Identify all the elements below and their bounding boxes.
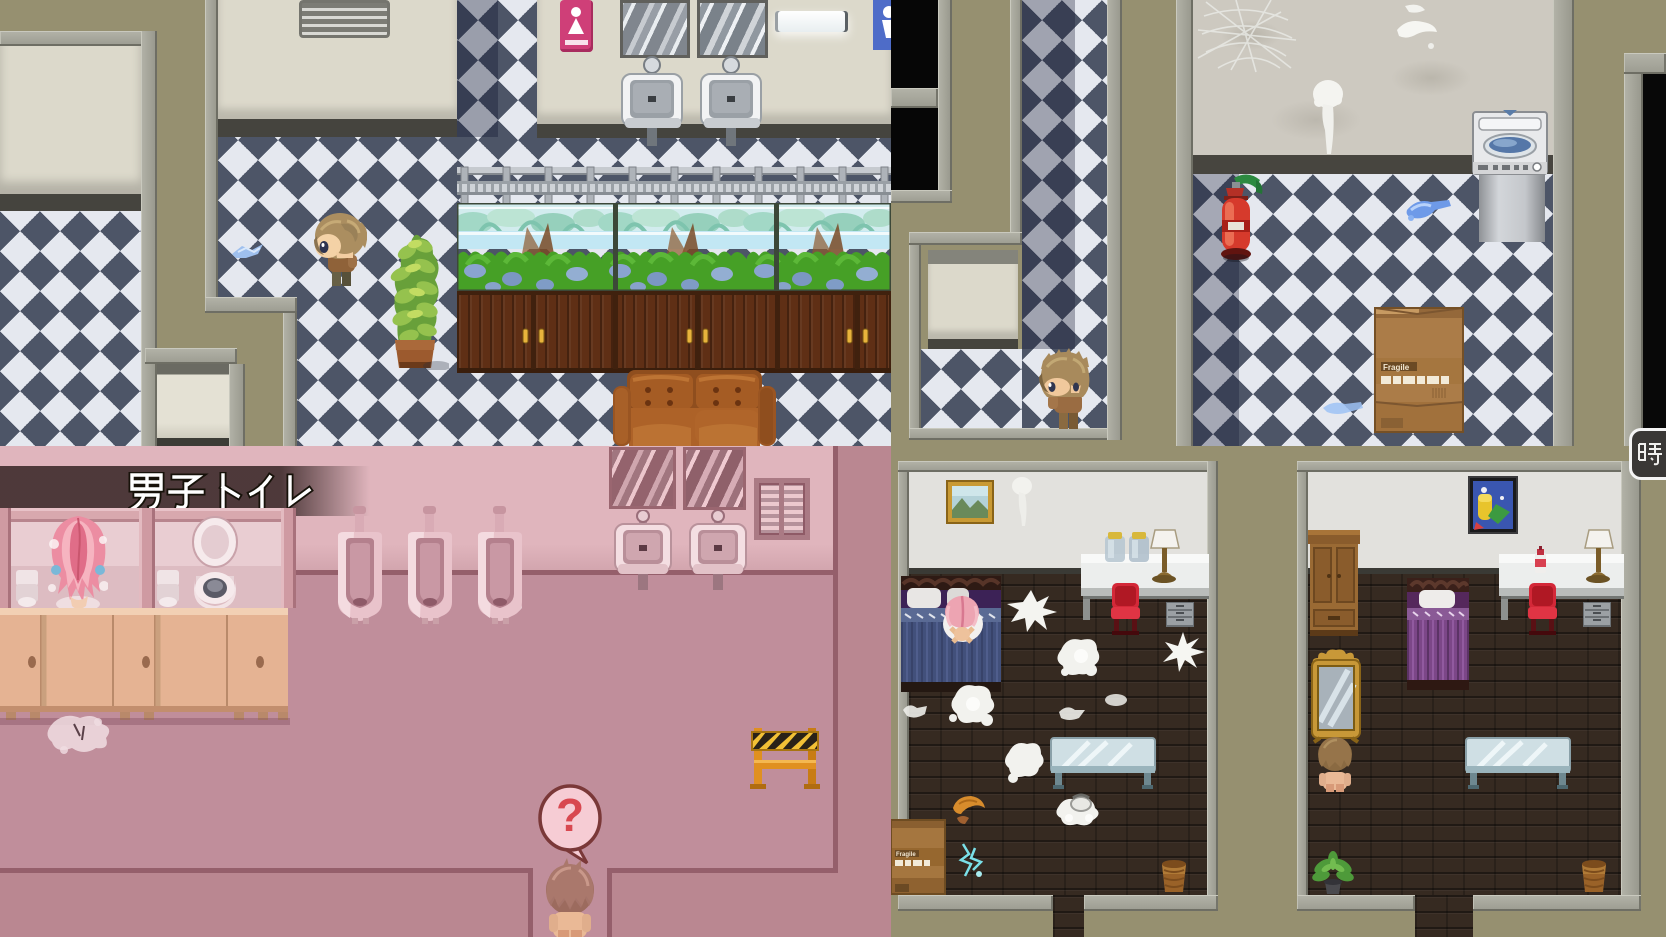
svg-text:Fragile: Fragile — [1383, 363, 1410, 372]
svg-text:?: ? — [556, 789, 584, 841]
svg-text:Fragile: Fragile — [896, 852, 916, 858]
